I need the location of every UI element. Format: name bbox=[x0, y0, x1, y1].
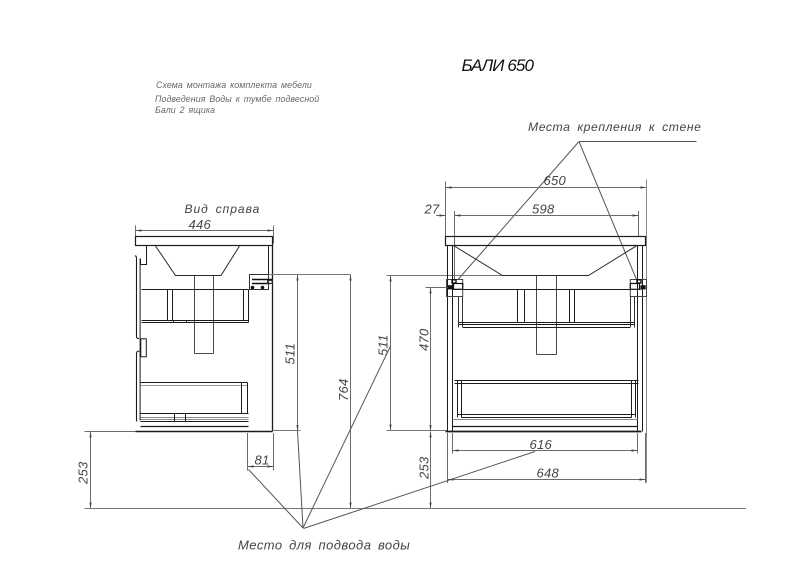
svg-text:253: 253 bbox=[417, 456, 432, 480]
svg-text:470: 470 bbox=[417, 328, 432, 351]
svg-text:Бали 2 ящика: Бали 2 ящика bbox=[155, 105, 215, 115]
svg-text:БАЛИ 650: БАЛИ 650 bbox=[462, 56, 535, 75]
svg-text:27: 27 bbox=[424, 202, 441, 217]
svg-text:764: 764 bbox=[336, 378, 351, 401]
svg-text:648: 648 bbox=[537, 466, 560, 481]
svg-text:650: 650 bbox=[544, 173, 567, 188]
svg-text:511: 511 bbox=[283, 343, 298, 365]
svg-text:Места крепления к стене: Места крепления к стене bbox=[528, 120, 701, 134]
svg-text:598: 598 bbox=[532, 202, 555, 217]
svg-text:253: 253 bbox=[76, 461, 91, 485]
svg-text:511: 511 bbox=[376, 334, 391, 356]
svg-text:446: 446 bbox=[189, 217, 212, 232]
svg-text:Подведения Воды к тумбе подвес: Подведения Воды к тумбе подвесной bbox=[155, 94, 319, 104]
svg-text:616: 616 bbox=[530, 437, 553, 452]
svg-text:81: 81 bbox=[255, 453, 270, 468]
svg-text:Место для подвода воды: Место для подвода воды bbox=[238, 538, 410, 553]
svg-text:Вид справа: Вид справа bbox=[185, 202, 261, 216]
svg-text:Схема монтажа комплекта мебели: Схема монтажа комплекта мебели bbox=[156, 80, 312, 90]
